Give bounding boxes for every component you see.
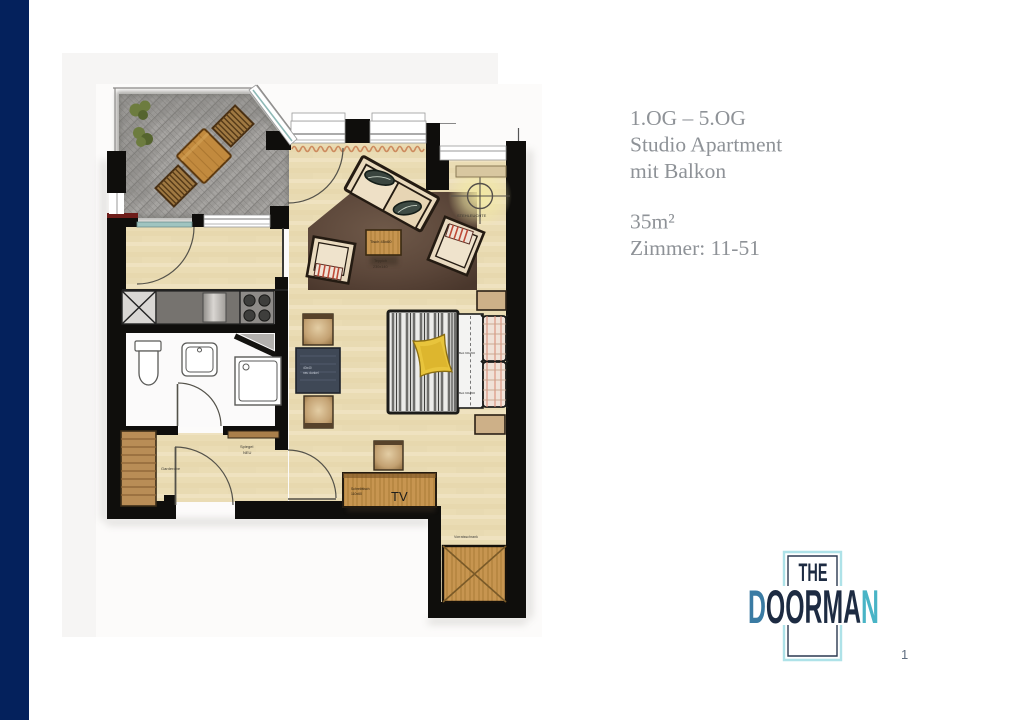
- svg-text:N: N: [861, 580, 879, 633]
- svg-text:Garderobe: Garderobe: [161, 466, 181, 471]
- svg-text:STEHLEUCHTE: STEHLEUCHTE: [457, 213, 487, 218]
- svg-text:neu dunkel: neu dunkel: [303, 371, 319, 375]
- svg-text:Bett 90x200: Bett 90x200: [459, 391, 475, 395]
- svg-text:1.OG – 5.OG: 1.OG – 5.OG: [630, 106, 746, 130]
- svg-text:Bett 90x200: Bett 90x200: [459, 351, 475, 355]
- svg-text:110x60: 110x60: [351, 492, 362, 496]
- svg-text:Schreibtisch: Schreibtisch: [351, 487, 370, 491]
- svg-text:40x40: 40x40: [303, 366, 312, 370]
- svg-text:Vorratsschrank: Vorratsschrank: [454, 535, 478, 539]
- svg-text:Studio Apartment: Studio Apartment: [630, 133, 782, 157]
- svg-text:OORMA: OORMA: [766, 580, 861, 633]
- svg-text:Tisch 45x60: Tisch 45x60: [370, 239, 392, 244]
- svg-text:Zimmer: 11-51: Zimmer: 11-51: [630, 236, 760, 260]
- svg-text:TV: TV: [391, 489, 408, 504]
- svg-text:1: 1: [901, 647, 908, 662]
- svg-text:NEU: NEU: [243, 450, 252, 455]
- svg-text:Teppich: Teppich: [374, 259, 387, 263]
- svg-text:D: D: [748, 580, 766, 633]
- svg-text:Spiegel: Spiegel: [240, 444, 253, 449]
- svg-text:35m²: 35m²: [630, 210, 675, 234]
- svg-text:mit Balkon: mit Balkon: [630, 159, 726, 183]
- svg-text:230x140: 230x140: [373, 265, 388, 269]
